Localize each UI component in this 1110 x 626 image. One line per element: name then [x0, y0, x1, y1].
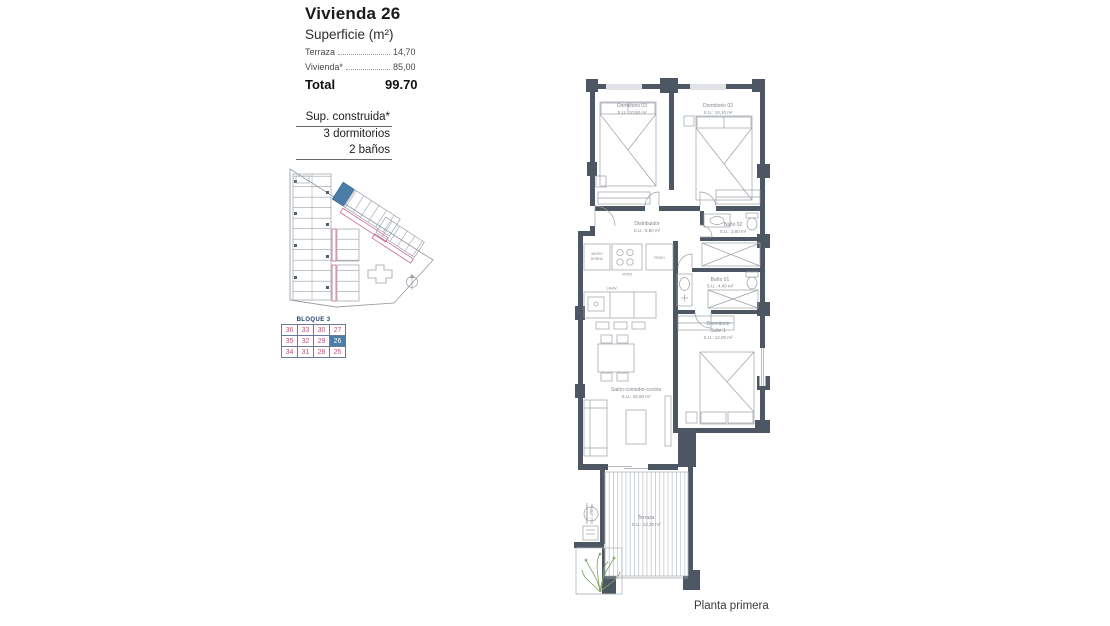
room-dormitorio-03: Dormitorio 03 S.U.: 10,50 m²	[617, 103, 647, 115]
surface-total-row: Total 99.70	[305, 77, 423, 92]
block-table-header: BLOQUE 3	[282, 317, 346, 325]
closet-hatched	[702, 243, 760, 266]
room-bano-01: Baño 01 S.U.: 4,40 m²	[707, 277, 734, 289]
svg-text:VITRO: VITRO	[622, 273, 633, 277]
block-unit-table: BLOQUE 3 363330273532292634312825	[281, 317, 346, 358]
svg-text:Dormitorio: Dormitorio	[706, 321, 729, 327]
svg-text:Salón-comedor-cocina: Salón-comedor-cocina	[611, 387, 661, 393]
total-value: 99.70	[385, 77, 423, 92]
unit-cell: 27	[330, 325, 346, 336]
unit-cell: 34	[282, 347, 298, 358]
dotted-leader	[338, 54, 390, 55]
surface-value: 14,70	[393, 47, 423, 57]
svg-text:Instalaciones: Instalaciones	[585, 503, 589, 524]
room-suite: Dormitorio Suite 1 S.U.: 12,00 m²	[703, 321, 733, 340]
summary-line: Sup. construida*	[296, 110, 392, 127]
mid-cluster-upper	[332, 229, 359, 261]
rowhouses-strip	[293, 174, 331, 300]
sofa	[584, 400, 607, 456]
construction-summary: Sup. construida* 3 dormitorios 2 baños	[296, 110, 392, 160]
svg-text:Distribuidor: Distribuidor	[634, 221, 660, 227]
surface-label: Terraza	[305, 47, 335, 57]
title-block: Vivienda 26 Superficie (m²) Terraza 14,7…	[305, 4, 423, 92]
svg-text:MICRO: MICRO	[591, 252, 603, 256]
room-bano-02: Baño 02 S.U.: 3,60 m²	[720, 222, 747, 234]
fixture-labels: MICRO HORNO VITRO FRIGO LAVAV.	[591, 252, 666, 291]
svg-text:S.U.: 12,20 m²: S.U.: 12,20 m²	[631, 522, 661, 527]
unit-cell: 25	[330, 347, 346, 358]
unit-cell-highlighted: 26	[330, 336, 346, 347]
svg-text:S.U.: 4,40 m²: S.U.: 4,40 m²	[707, 284, 734, 289]
mid-cluster-lower	[332, 265, 359, 301]
table-row: 35322926	[282, 336, 346, 347]
room-instalaciones: Instalaciones S.U.: 2,50 m²	[585, 503, 594, 524]
unit-cell: 28	[314, 347, 330, 358]
floor-plan: Dormitorio 03 S.U.: 10,50 m² Dormitorio …	[550, 78, 805, 612]
unit-cell: 36	[282, 325, 298, 336]
svg-text:Terraza: Terraza	[638, 515, 655, 521]
surface-row-vivienda: Vivienda* 85,00	[305, 62, 423, 72]
windows	[606, 84, 766, 387]
total-label: Total	[305, 77, 335, 92]
room-labels: Dormitorio 03 S.U.: 10,50 m² Dormitorio …	[585, 103, 747, 527]
coffee-table	[626, 410, 646, 444]
site-plan	[276, 166, 444, 316]
unit-cell: 32	[298, 336, 314, 347]
svg-text:LAVAV.: LAVAV.	[607, 287, 618, 291]
svg-text:S.U.: 3,60 m²: S.U.: 3,60 m²	[720, 229, 747, 234]
svg-text:Baño 02: Baño 02	[724, 222, 743, 228]
terrace-deck	[576, 472, 688, 594]
table-row: 34312825	[282, 347, 346, 358]
pool-building	[368, 265, 392, 283]
unit-cell: 35	[282, 336, 298, 347]
dining-set	[598, 335, 634, 381]
summary-line: 3 dormitorios	[296, 127, 392, 143]
unit-title: Vivienda 26	[305, 4, 423, 24]
surface-label: Vivienda*	[305, 62, 343, 72]
svg-text:S.U.: 10,10 m²: S.U.: 10,10 m²	[703, 110, 733, 115]
tv-unit	[665, 396, 671, 446]
svg-text:S.U.: 10,50 m²: S.U.: 10,50 m²	[617, 110, 647, 115]
svg-text:Dormitorio 03: Dormitorio 03	[617, 103, 647, 109]
room-salon: Salón-comedor-cocina S.U.: 25,50 m²	[611, 387, 661, 399]
svg-text:FRIGO: FRIGO	[654, 256, 665, 260]
svg-text:S.U.: 5,80 m²: S.U.: 5,80 m²	[634, 228, 661, 233]
svg-text:S.U.: 2,50 m²: S.U.: 2,50 m²	[590, 503, 594, 524]
surface-subtitle: Superficie (m²)	[305, 27, 423, 42]
unit-cell: 31	[298, 347, 314, 358]
svg-text:Suite 1: Suite 1	[710, 328, 726, 334]
table-row: 36333027	[282, 325, 346, 336]
surface-row-terraza: Terraza 14,70	[305, 47, 423, 57]
summary-line: 2 baños	[296, 143, 392, 160]
svg-text:Dormitorio 02: Dormitorio 02	[703, 103, 733, 109]
svg-text:S.U.: 12,00 m²: S.U.: 12,00 m²	[703, 335, 733, 340]
surface-value: 85,00	[393, 62, 423, 72]
room-dormitorio-02: Dormitorio 02 S.U.: 10,10 m²	[703, 103, 733, 115]
block-table-body: 363330273532292634312825	[282, 325, 346, 358]
bed-dorm2	[684, 116, 752, 200]
kitchen-island	[584, 292, 656, 329]
unit-cell: 33	[298, 325, 314, 336]
svg-text:HORNO: HORNO	[591, 257, 604, 261]
dotted-leader	[346, 69, 390, 70]
room-distribuidor: Distribuidor S.U.: 5,80 m²	[634, 221, 661, 233]
svg-text:S.U.: 25,50 m²: S.U.: 25,50 m²	[621, 394, 651, 399]
plan-caption: Planta primera	[694, 600, 769, 612]
unit-cell: 30	[314, 325, 330, 336]
svg-text:Baño 01: Baño 01	[711, 277, 730, 283]
unit-cell: 29	[314, 336, 330, 347]
